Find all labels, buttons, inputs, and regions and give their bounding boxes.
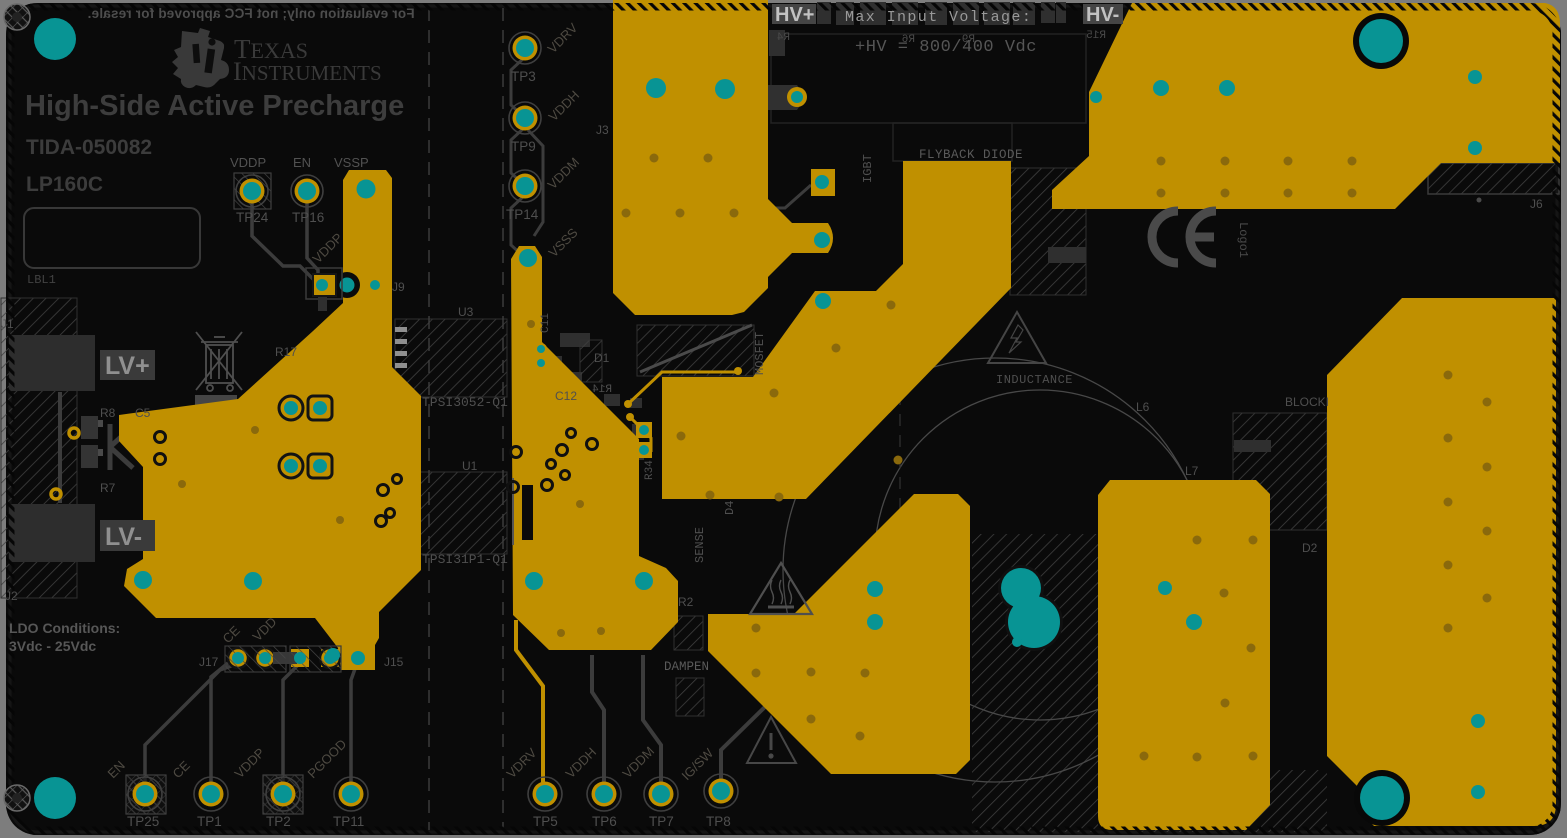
svg-text:R8: R8 <box>100 406 116 420</box>
svg-text:TPSI31P1-Q1: TPSI31P1-Q1 <box>422 552 508 567</box>
svg-text:J2: J2 <box>5 589 18 603</box>
svg-text:HV+: HV+ <box>775 4 814 26</box>
svg-text:IGBT: IGBT <box>861 154 875 183</box>
svg-text:R14: R14 <box>592 384 612 396</box>
svg-text:J6: J6 <box>1530 197 1543 211</box>
svg-text:TP7: TP7 <box>649 814 674 829</box>
svg-text:J3: J3 <box>596 123 609 137</box>
svg-text:D4: D4 <box>723 501 737 515</box>
svg-text:FLYBACK DIODE: FLYBACK DIODE <box>919 148 1023 162</box>
svg-text:C12: C12 <box>555 389 577 403</box>
svg-text:LV-: LV- <box>105 523 142 551</box>
svg-text:TP2: TP2 <box>266 814 291 829</box>
svg-text:TP1: TP1 <box>197 814 222 829</box>
svg-text:EN: EN <box>293 155 311 170</box>
svg-text:J1: J1 <box>1 317 14 331</box>
svg-text:TP16: TP16 <box>292 210 324 225</box>
svg-text:TP6: TP6 <box>592 814 617 829</box>
svg-text:TP11: TP11 <box>333 814 364 829</box>
svg-text:Logo1: Logo1 <box>1236 222 1250 258</box>
svg-text:DAMPEN: DAMPEN <box>664 660 709 674</box>
svg-text:R7: R7 <box>100 481 116 495</box>
svg-text:TP14: TP14 <box>506 207 539 222</box>
svg-text:LBL1: LBL1 <box>27 273 56 287</box>
svg-text:Max Input Voltage:: Max Input Voltage: <box>845 9 1032 26</box>
svg-text:INSTRUMENTS: INSTRUMENTS <box>233 57 382 86</box>
svg-text:R15: R15 <box>1086 30 1106 42</box>
svg-text:L6: L6 <box>1136 400 1150 414</box>
svg-text:SENSE: SENSE <box>693 527 707 563</box>
svg-text:VDDP: VDDP <box>230 155 266 170</box>
svg-text:L7: L7 <box>1185 464 1199 478</box>
svg-text:U3: U3 <box>458 305 474 319</box>
svg-text:LV+: LV+ <box>105 352 150 380</box>
svg-text:U1: U1 <box>462 459 478 473</box>
svg-text:J17: J17 <box>199 655 219 669</box>
svg-text:TP25: TP25 <box>127 814 159 829</box>
svg-text:R6: R6 <box>902 34 915 46</box>
svg-text:D2: D2 <box>1302 541 1318 555</box>
svg-text:VSSP: VSSP <box>334 155 369 170</box>
svg-text:R2: R2 <box>678 595 694 609</box>
svg-text:+HV = 800/400 Vdc: +HV = 800/400 Vdc <box>855 38 1037 57</box>
svg-text:C11: C11 <box>540 313 552 333</box>
svg-text:INDUCTANCE: INDUCTANCE <box>996 373 1073 387</box>
svg-text:For evaluation only; not FCC a: For evaluation only; not FCC approved fo… <box>87 6 414 21</box>
svg-text:R17: R17 <box>275 345 297 359</box>
svg-text:TP8: TP8 <box>706 814 731 829</box>
svg-text:TEXAS: TEXAS <box>234 34 308 64</box>
svg-text:HV-: HV- <box>1086 4 1119 26</box>
svg-text:TIDA-050082: TIDA-050082 <box>26 136 152 159</box>
svg-text:J15: J15 <box>384 655 404 669</box>
svg-text:J9: J9 <box>392 280 405 294</box>
svg-text:LP160C: LP160C <box>26 173 103 196</box>
svg-text:TP9: TP9 <box>511 139 536 154</box>
svg-text:LDO Conditions:: LDO Conditions: <box>9 620 120 636</box>
svg-text:R9: R9 <box>962 34 975 46</box>
svg-text:TP24: TP24 <box>236 210 269 225</box>
svg-text:BLOCKI: BLOCKI <box>1285 395 1329 409</box>
svg-text:R4: R4 <box>776 32 790 44</box>
svg-text:High-Side Active Precharge: High-Side Active Precharge <box>25 90 404 122</box>
svg-text:R34: R34 <box>644 460 656 480</box>
svg-text:TP5: TP5 <box>533 814 558 829</box>
svg-text:TP3: TP3 <box>511 69 536 84</box>
svg-text:3Vdc - 25Vdc: 3Vdc - 25Vdc <box>9 638 96 654</box>
svg-text:MOSFET: MOSFET <box>753 332 767 375</box>
svg-text:D1: D1 <box>594 351 610 365</box>
svg-text:C5: C5 <box>135 406 151 420</box>
svg-text:TPSI3052-Q1: TPSI3052-Q1 <box>422 395 508 410</box>
